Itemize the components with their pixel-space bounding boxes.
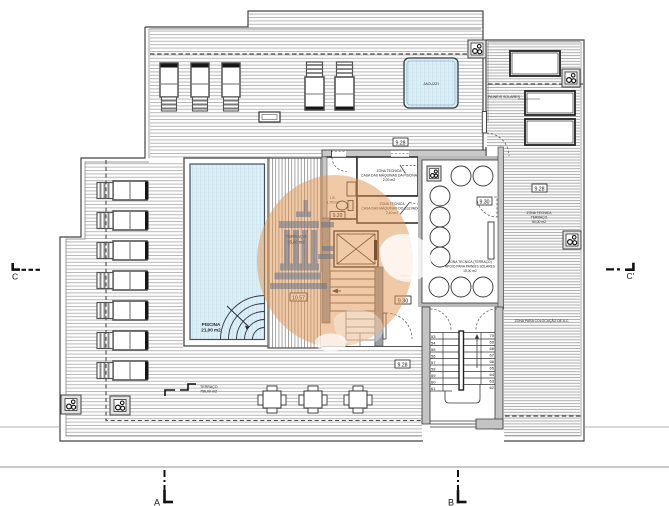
svg-text:59: 59 xyxy=(431,373,436,378)
svg-text:63: 63 xyxy=(490,379,495,384)
svg-text:61: 61 xyxy=(431,386,436,391)
svg-text:A: A xyxy=(154,498,160,506)
svg-text:54: 54 xyxy=(431,341,436,346)
svg-text:56: 56 xyxy=(431,354,436,359)
svg-text:ZONA TECNICA: ZONA TECNICA xyxy=(527,211,553,215)
svg-text:756,00 m2: 756,00 m2 xyxy=(200,390,217,394)
svg-text:21,00 m2: 21,00 m2 xyxy=(201,328,221,333)
svg-text:68: 68 xyxy=(490,346,495,351)
svg-text:57: 57 xyxy=(431,360,436,365)
svg-text:9.28: 9.28 xyxy=(534,187,544,193)
svg-text:70: 70 xyxy=(490,333,495,338)
svg-text:9.28: 9.28 xyxy=(395,141,405,147)
svg-text:67: 67 xyxy=(490,353,495,358)
svg-text:CASA DAS MÁQUINAS DA PISCINA: CASA DAS MÁQUINAS DA PISCINA xyxy=(361,174,418,178)
svg-text:TERRAÇO: TERRAÇO xyxy=(200,385,218,389)
svg-text:PAINÉIS SOLARES: PAINÉIS SOLARES xyxy=(488,94,520,99)
svg-text:58: 58 xyxy=(431,367,436,372)
svg-text:64: 64 xyxy=(490,372,495,377)
svg-text:C: C xyxy=(12,272,18,282)
svg-text:ZONA TECNICA (TERRAÇO): ZONA TECNICA (TERRAÇO) xyxy=(448,260,491,264)
svg-text:55: 55 xyxy=(431,347,436,352)
svg-text:ZONA TECNICA: ZONA TECNICA xyxy=(377,169,403,173)
svg-text:62: 62 xyxy=(490,385,495,390)
svg-text:69: 69 xyxy=(490,340,495,345)
svg-text:PISCINA: PISCINA xyxy=(202,322,221,327)
svg-text:9.28: 9.28 xyxy=(397,363,407,369)
svg-text:53: 53 xyxy=(431,334,436,339)
svg-text:2,00 m2: 2,00 m2 xyxy=(383,178,395,182)
svg-text:B: B xyxy=(448,498,454,506)
svg-text:60: 60 xyxy=(431,380,436,385)
svg-text:ZONA PARA COLOCAÇÃO DE A.C.: ZONA PARA COLOCAÇÃO DE A.C. xyxy=(515,318,570,323)
svg-text:TERRAÇO: TERRAÇO xyxy=(531,216,548,220)
svg-text:65: 65 xyxy=(490,366,495,371)
svg-text:50,00 m2: 50,00 m2 xyxy=(532,220,546,224)
svg-text:C': C' xyxy=(627,271,635,281)
svg-text:66: 66 xyxy=(490,359,495,364)
svg-text:9.30: 9.30 xyxy=(479,200,489,206)
svg-text:JACUZZI: JACUZZI xyxy=(423,82,439,86)
svg-text:APOIO PARA PAINÉIS SOLARES: APOIO PARA PAINÉIS SOLARES xyxy=(445,264,496,269)
svg-text:15,00 m2: 15,00 m2 xyxy=(463,269,477,273)
